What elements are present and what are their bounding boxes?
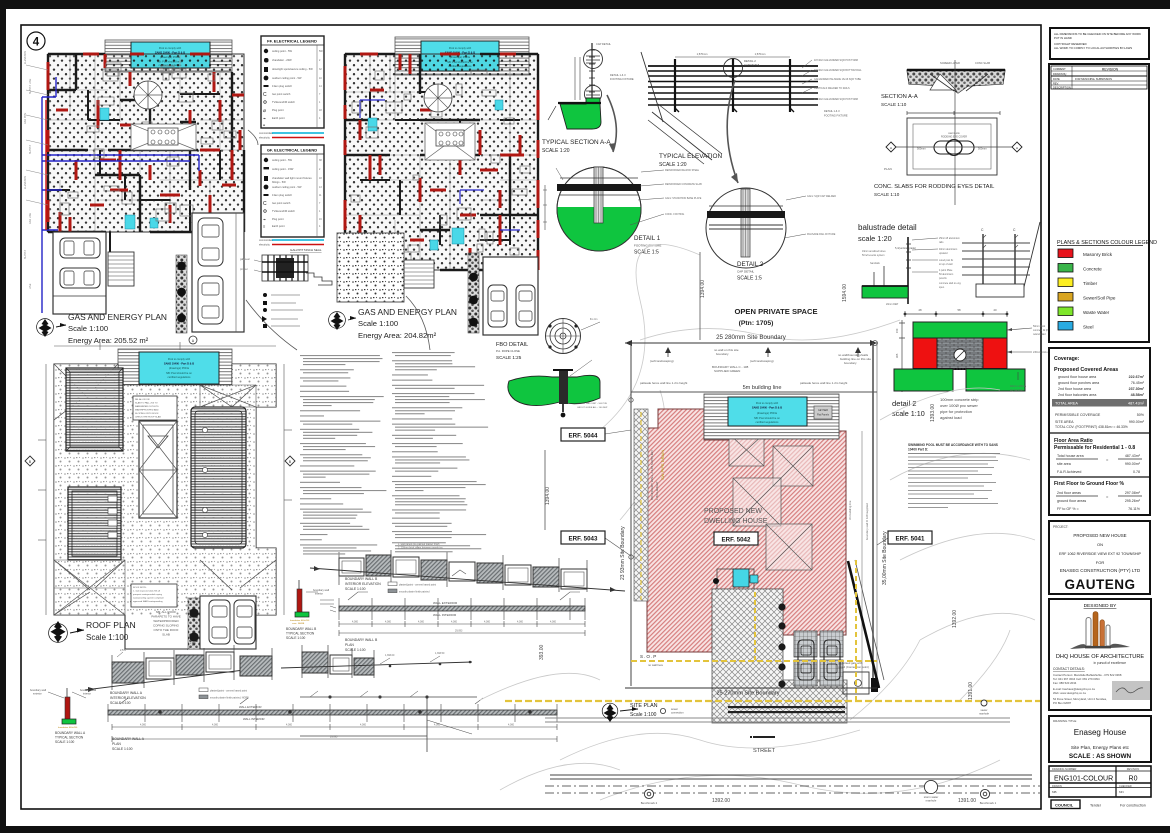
svg-text:NB: Pool should be on: NB: Pool should be on: [166, 371, 192, 375]
svg-text:SCREED LAYER: SCREED LAYER: [940, 61, 960, 65]
svg-text:ENG101-COLOUR: ENG101-COLOUR: [1054, 776, 1113, 783]
svg-text:ERF. 5043: ERF. 5043: [569, 536, 598, 543]
svg-text:10400 Part D:: 10400 Part D:: [908, 448, 928, 452]
svg-text:exterior: exterior: [33, 692, 42, 696]
svg-text:Floor Area Ratio: Floor Area Ratio: [1054, 438, 1093, 444]
svg-text:(soft landscaping): (soft landscaping): [750, 359, 774, 363]
svg-text:SUPPLIED GREEN: SUPPLIED GREEN: [714, 369, 740, 373]
svg-text:SLOPING ONTO ROOF: SLOPING ONTO ROOF: [135, 413, 159, 415]
svg-text:CHECKED: CHECKED: [1119, 784, 1132, 788]
svg-text:TYPICAL SECTION A-A: TYPICAL SECTION A-A: [542, 139, 611, 146]
svg-text:5m building line: 5m building line: [743, 385, 782, 391]
svg-text:SITE AREA: SITE AREA: [1055, 420, 1074, 424]
svg-text:Earth point: Earth point: [272, 116, 285, 120]
svg-text:GALV. SQR CAP WELDED: GALV. SQR CAP WELDED: [807, 195, 836, 198]
svg-text:40Y40x3 GALVANIZED SQR POST 5M: 40Y40x3 GALVANIZED SQR POST 5MM: [814, 59, 858, 62]
svg-text:SITE PLAN: SITE PLAN: [630, 703, 658, 709]
svg-text:MB: MB: [1052, 790, 1057, 794]
svg-text:handrails: handrails: [870, 262, 881, 265]
svg-text:4,000: 4,000: [352, 621, 359, 624]
svg-text:downlight spots/secure ceiling: downlight spots/secure ceiling - 5W: [272, 67, 313, 71]
svg-text:manhole: manhole: [979, 712, 990, 716]
svg-text:outdoor ceiling point - 5W: outdoor ceiling point - 5W: [272, 76, 302, 80]
svg-text:500mm: 500mm: [917, 147, 926, 151]
svg-text:INTERIOR ELEVATION: INTERIOR ELEVATION: [345, 582, 381, 586]
svg-text:REVISION: REVISION: [1102, 68, 1119, 72]
svg-text:cored post fix: cored post fix: [939, 259, 954, 262]
svg-text:50%: 50%: [1137, 413, 1145, 417]
svg-text:Fax: 086 520 2034: Fax: 086 520 2034: [1053, 681, 1077, 685]
svg-text:REINFORCED RE-ROD STEEL: REINFORCED RE-ROD STEEL: [665, 169, 700, 172]
svg-text:GALVANIZED PALISADE 16x16 SQR: GALVANIZED PALISADE 16x16 SQR TUBE: [814, 78, 861, 81]
svg-text:4,000: 4,000: [418, 621, 425, 624]
svg-text:4,000: 4,000: [140, 724, 147, 727]
svg-text:25mm Ø aluminium: 25mm Ø aluminium: [939, 237, 960, 240]
svg-text:C: C: [263, 201, 267, 207]
svg-text:0.78: 0.78: [1133, 470, 1140, 474]
svg-text:ERF 1062 RIVERSIDE VIEW EXT 92: ERF 1062 RIVERSIDE VIEW EXT 92 TOWNSHIP: [1059, 552, 1142, 556]
svg-text:(Ptn: 1705): (Ptn: 1705): [739, 320, 774, 327]
svg-text:scale 1:20: scale 1:20: [858, 234, 892, 243]
svg-text:SUPPLY: SUPPLY: [29, 144, 32, 154]
svg-text:conc. NGRB: conc. NGRB: [292, 623, 305, 625]
svg-text:FBO DETAIL: FBO DETAIL: [496, 342, 528, 348]
svg-text:B: B: [29, 460, 31, 464]
svg-text:TV&sound/M switch: TV&sound/M switch: [272, 209, 295, 213]
svg-text:fbo rim: fbo rim: [590, 318, 597, 321]
svg-text:COPING SLOPING: COPING SLOPING: [153, 624, 180, 628]
svg-text:PROPOSED NEW HOUSE: PROPOSED NEW HOUSE: [1073, 533, 1126, 538]
svg-text:4 point Plate: 4 point Plate: [939, 269, 953, 272]
svg-text:in pursuit of excellence: in pursuit of excellence: [1094, 661, 1127, 665]
svg-text:ELEVATION: ELEVATION: [24, 176, 27, 189]
svg-text:1,570mm: 1,570mm: [697, 52, 708, 56]
svg-text:over 100Ø pvc sewer: over 100Ø pvc sewer: [940, 403, 978, 408]
svg-text:reland.) laid: reland.) laid: [1033, 333, 1046, 336]
svg-text:ENASEG CONSTRUCTION (PTY) LTD: ENASEG CONSTRUCTION (PTY) LTD: [1060, 568, 1141, 573]
svg-text:ceiling point - 5W: ceiling point - 5W: [272, 158, 292, 162]
svg-text:SWIMMING POOL MUST BE ACCORDAN: SWIMMING POOL MUST BE ACCORDANCE WITH TO…: [908, 443, 998, 447]
svg-text:pit liner: pit liner: [240, 268, 248, 271]
svg-text:DETAIL 1 & 3: DETAIL 1 & 3: [824, 109, 840, 113]
svg-text:2,570: 2,570: [190, 642, 197, 645]
svg-text:13am plug switch: 13am plug switch: [272, 193, 293, 197]
svg-text:DATE: DATE: [1053, 77, 1060, 81]
svg-text:to top of wall: to top of wall: [939, 263, 953, 266]
svg-text:Steel: Steel: [1083, 325, 1093, 330]
svg-text:CONTACT DETAILS:: CONTACT DETAILS:: [1053, 667, 1085, 671]
svg-text:CONC. FOOTING: CONC. FOOTING: [665, 213, 684, 216]
svg-text:ERF. 5044: ERF. 5044: [569, 433, 598, 440]
svg-text:BOUNDARY WALL A 1#8 SUPPLIED: BOUNDARY WALL A 1#8 SUPPLIED: [650, 449, 654, 500]
svg-text:13am plug switch: 13am plug switch: [272, 84, 293, 88]
svg-text:For construction: For construction: [1120, 804, 1146, 808]
svg-text:Permissable for Residential 1: Permissable for Residential 1 - 0.8: [1054, 445, 1135, 451]
svg-text:BOUNDARY WALL B: BOUNDARY WALL B: [345, 577, 378, 581]
svg-text:concrete lid (if: concrete lid (if: [1033, 329, 1048, 332]
svg-text:Tender: Tender: [1090, 804, 1102, 808]
svg-text:SANS 10400 - Part D & B: SANS 10400 - Part D & B: [164, 362, 194, 366]
svg-text:LINE: LINE: [29, 283, 32, 289]
svg-text:PLAN: PLAN: [884, 167, 892, 171]
svg-text:393.00: 393.00: [539, 644, 545, 660]
svg-text:ERF. 5041: ERF. 5041: [896, 536, 925, 543]
svg-text:pipe for protection: pipe for protection: [940, 409, 972, 414]
svg-text:BOUNDARY WALL B: BOUNDARY WALL B: [286, 627, 316, 631]
svg-text:NB: ALL ROOF: NB: ALL ROOF: [156, 610, 177, 614]
svg-text:Masonry Brick: Masonry Brick: [1083, 252, 1113, 257]
svg-text:PLAN: PLAN: [112, 742, 121, 746]
svg-text:CAP DETAIL: CAP DETAIL: [596, 42, 611, 46]
svg-text:4,000: 4,000: [212, 724, 219, 727]
svg-text:1. slab exposed slab 255 all: 1. slab exposed slab 255 all: [133, 591, 161, 593]
svg-text:interior: interior: [315, 592, 323, 596]
svg-text:PO Bus 62087: PO Bus 62087: [1053, 701, 1072, 705]
svg-text:100mm concrete strip: 100mm concrete strip: [940, 397, 979, 402]
svg-text:295.26m²: 295.26m²: [1125, 499, 1141, 503]
svg-text:Sewer/Soil Pipe: Sewer/Soil Pipe: [1083, 296, 1116, 301]
svg-text:REINFORCED CONCRETE SLAB: REINFORCED CONCRETE SLAB: [665, 183, 702, 186]
svg-text:1.8m HEIGHT: 1.8m HEIGHT: [655, 481, 659, 500]
svg-text:DETAIL 1 & 3: DETAIL 1 & 3: [610, 73, 626, 77]
svg-text:487.43m²: 487.43m²: [1128, 402, 1145, 406]
svg-text:electricity: electricity: [259, 136, 271, 140]
svg-text:DRAWN: DRAWN: [1052, 784, 1062, 788]
svg-text:29,093: 29,093: [455, 630, 463, 633]
svg-text:WALL INTERIOR: WALL INTERIOR: [433, 613, 457, 617]
svg-text:PARAPETS TO HAVE: PARAPETS TO HAVE: [151, 615, 180, 619]
svg-text:4,000: 4,000: [508, 724, 515, 727]
svg-text:58: 58: [957, 308, 961, 312]
svg-text:plaster&paint - cement based p: plaster&paint - cement based paint: [210, 690, 247, 693]
svg-text:305: 305: [895, 353, 899, 358]
svg-text:28: 28: [918, 308, 922, 312]
svg-text:DHQ HOUSE OF ARCHITECTURE: DHQ HOUSE OF ARCHITECTURE: [1056, 654, 1145, 660]
svg-text:PROPOSED NEW: PROPOSED NEW: [704, 508, 762, 515]
svg-text:CURRENT: CURRENT: [1053, 67, 1066, 71]
svg-text:smooth plaster finish painted,: smooth plaster finish painted, NGRB: [210, 697, 249, 700]
svg-text:40mm x 25mm: 40mm x 25mm: [1010, 385, 1026, 388]
svg-text:SANS 10400 - Part D & B: SANS 10400 - Part D & B: [752, 406, 782, 410]
svg-text:PROJECT:: PROJECT:: [1053, 525, 1069, 529]
svg-text:Proposed Covered Areas: Proposed Covered Areas: [1054, 367, 1118, 373]
svg-text:Φ: Φ: [263, 100, 267, 106]
svg-text:NB: Pool should be on: NB: Pool should be on: [754, 416, 780, 420]
svg-text:FOR: FOR: [1096, 560, 1105, 565]
svg-text:GALV/PIT 5INCH SEAL: GALV/PIT 5INCH SEAL: [290, 248, 322, 252]
svg-text:GAS LINE: GAS LINE: [29, 213, 32, 224]
svg-text:40mm aluminium: 40mm aluminium: [939, 248, 957, 251]
svg-text:2nd floor house area: 2nd floor house area: [1058, 387, 1091, 391]
svg-text:DRAWING NUMBER: DRAWING NUMBER: [1052, 767, 1077, 771]
svg-text:ceiling point - 15W: ceiling point - 15W: [272, 167, 294, 171]
svg-text:SCALE 1:25: SCALE 1:25: [496, 355, 522, 360]
svg-text:TYPICAL ELEVATION: TYPICAL ELEVATION: [659, 153, 722, 160]
svg-text:TYPICAL SECTION: TYPICAL SECTION: [55, 736, 84, 740]
svg-text:ONTO THE ROOF: ONTO THE ROOF: [154, 628, 179, 632]
svg-text:Φ: Φ: [263, 209, 267, 215]
svg-text:GEYSER: GEYSER: [818, 409, 828, 412]
svg-text:ELEVATION: ELEVATION: [24, 51, 27, 64]
svg-text:DESCRIPTION: DESCRIPTION: [1053, 86, 1071, 90]
svg-text:3m building line: 3m building line: [848, 500, 852, 520]
svg-text:C: C: [263, 92, 267, 98]
svg-text:chandelier wall light mount fi: chandelier wall light mount fixtures: [272, 176, 312, 180]
svg-text:galv seal: galv seal: [240, 258, 250, 261]
svg-text:19mm anodized tubes: 19mm anodized tubes: [862, 250, 886, 253]
svg-text:SCALE 1:100: SCALE 1:100: [110, 701, 131, 705]
svg-text:4,000: 4,000: [286, 724, 293, 727]
svg-text:B: B: [289, 460, 291, 464]
svg-text:4,000: 4,000: [451, 621, 458, 624]
svg-text:76.11%: 76.11%: [1128, 507, 1141, 511]
svg-text:Benchmark 1: Benchmark 1: [980, 801, 997, 805]
svg-text:SCALE 1:100: SCALE 1:100: [345, 587, 366, 591]
svg-text:TYPICAL SECTION: TYPICAL SECTION: [286, 632, 315, 636]
svg-text:FOOTING FIXTURE: FOOTING FIXTURE: [610, 77, 634, 81]
svg-text:1,570mm: 1,570mm: [755, 52, 766, 56]
svg-text:SCALE 1:10: SCALE 1:10: [881, 102, 907, 107]
svg-text:SUPPLY LINE: SUPPLY LINE: [29, 78, 32, 94]
svg-text:76.45m²: 76.45m²: [1131, 381, 1145, 385]
svg-text:50mm thick: 50mm thick: [1033, 325, 1046, 328]
svg-text:DRAWING TITLE: DRAWING TITLE: [1053, 719, 1076, 723]
svg-text:Total house area: Total house area: [1057, 454, 1084, 458]
svg-text:SCALE 1:20: SCALE 1:20: [542, 148, 570, 154]
svg-text:smooth plaster finish painted: smooth plaster finish painted: [399, 591, 430, 594]
svg-text:two point switch: two point switch: [272, 92, 291, 96]
svg-text:comms/data: comms/data: [259, 238, 274, 242]
svg-text:(drawings) P001s: (drawings) P001s: [757, 411, 778, 415]
svg-text:Pool to comply with: Pool to comply with: [449, 46, 472, 50]
svg-text:foundation 600x250: foundation 600x250: [58, 726, 78, 729]
svg-text:50 aluminium: 50 aluminium: [939, 273, 953, 276]
svg-text:FF. ELECTRICAL LEGEND: FF. ELECTRICAL LEGEND: [267, 39, 317, 44]
svg-text:dry handrail: dry handrail: [1010, 389, 1023, 392]
svg-text:1394.00: 1394.00: [545, 487, 551, 505]
svg-text:guard (Connection point): guard (Connection point): [838, 665, 869, 669]
svg-text:4: 4: [33, 37, 40, 49]
svg-text:CAP DETAIL: CAP DETAIL: [744, 63, 761, 67]
svg-text:two point switch: two point switch: [272, 201, 291, 205]
svg-text:TV&sound/M switch: TV&sound/M switch: [272, 100, 295, 104]
svg-text:2nd floor areas: 2nd floor areas: [1057, 491, 1081, 495]
svg-text:1394.00: 1394.00: [700, 280, 706, 298]
svg-text:35,00mm Site Boundary: 35,00mm Site Boundary: [882, 531, 888, 585]
svg-text:waterproofing system compliant: waterproofing system compliant: [133, 597, 164, 600]
svg-text:BOUNDARY WALL B: BOUNDARY WALL B: [345, 638, 378, 642]
svg-text:parapets waterproofed coping: parapets waterproofed coping: [133, 593, 163, 596]
svg-text:WALL INTERIOR: WALL INTERIOR: [243, 717, 265, 721]
svg-text:fittings - 5W: fittings - 5W: [272, 180, 286, 184]
svg-text:CONC. SLABS FOR RODDING EYES D: CONC. SLABS FOR RODDING EYES DETAIL: [874, 184, 995, 190]
svg-text:1,393.50: 1,393.50: [435, 652, 445, 655]
svg-text:approved SANS waterproofing: approved SANS waterproofing: [133, 600, 163, 603]
svg-text:Energy Area: 204.82m²: Energy Area: 204.82m²: [358, 331, 437, 340]
svg-text:4,000: 4,000: [484, 621, 491, 624]
svg-text:⌁: ⌁: [263, 116, 266, 122]
svg-text:GAS AND ENERGY PLAN: GAS AND ENERGY PLAN: [358, 307, 457, 317]
svg-text:23 93mm Site Boundary: 23 93mm Site Boundary: [620, 526, 626, 580]
svg-text:ROOF NOTE:: ROOF NOTE:: [133, 587, 147, 589]
svg-text:R0: R0: [1129, 776, 1138, 783]
svg-text:boundary wall: boundary wall: [313, 588, 329, 592]
svg-text:CONC SLAB: CONC SLAB: [975, 61, 990, 65]
svg-text:1,393.00: 1,393.00: [385, 654, 395, 657]
svg-text:GROUT GUIDE ALL - 100 DEP: GROUT GUIDE ALL - 100 DEP: [577, 406, 608, 409]
svg-text:990.00m²: 990.00m²: [1125, 462, 1141, 466]
svg-text:50 left events system: 50 left events system: [862, 254, 884, 257]
svg-text:F.A.R Achieved: F.A.R Achieved: [1057, 470, 1081, 474]
svg-text:25 270mm Site Boundary: 25 270mm Site Boundary: [716, 691, 779, 697]
svg-text:against load: against load: [940, 415, 962, 420]
svg-text:1391.00: 1391.00: [968, 682, 974, 700]
svg-text:Earth point: Earth point: [272, 224, 285, 228]
svg-text:1392.00: 1392.00: [712, 798, 730, 804]
svg-text:OPEN PRIVATE SPACE: OPEN PRIVATE SPACE: [734, 307, 817, 316]
svg-text:boundary wall: boundary wall: [80, 688, 96, 692]
svg-text:WATERPROOFED: WATERPROOFED: [153, 619, 179, 623]
svg-text:RAINWATER OUTLETS: RAINWATER OUTLETS: [135, 405, 159, 408]
svg-text:2,570: 2,570: [120, 649, 127, 652]
svg-text:boundary: boundary: [844, 361, 857, 365]
svg-text:SCALE 1:20: SCALE 1:20: [659, 162, 687, 168]
svg-text:PUT IN HAND: PUT IN HAND: [1054, 36, 1072, 40]
svg-text:Scale 1:100: Scale 1:100: [358, 319, 398, 328]
svg-text:certified segulations: certified segulations: [756, 420, 780, 424]
svg-text:STREET: STREET: [753, 748, 776, 754]
svg-text:ON: ON: [1097, 542, 1103, 547]
svg-text:DWELLING HOUSE: DWELLING HOUSE: [704, 518, 768, 525]
svg-text:connection: connection: [671, 711, 684, 715]
svg-text:487.43m²: 487.43m²: [1125, 454, 1141, 458]
svg-text:1392.00: 1392.00: [952, 610, 958, 628]
svg-text:SECTION A-A: SECTION A-A: [881, 94, 918, 100]
svg-text:MN: MN: [1119, 790, 1124, 794]
svg-text:S.O.P: S.O.P: [640, 654, 657, 659]
svg-text:SW PIPE DRAIN: SW PIPE DRAIN: [660, 450, 665, 480]
svg-text:SUPPLY: SUPPLY: [24, 249, 27, 259]
svg-text:BOUNDARY WALL A: BOUNDARY WALL A: [112, 737, 145, 741]
svg-text:sewer: sewer: [981, 708, 988, 712]
svg-text:150: 150: [895, 328, 899, 333]
svg-text:DRAWN By: DRAWN By: [1053, 72, 1067, 76]
svg-text:sewer: sewer: [671, 707, 678, 711]
svg-text:1391.00: 1391.00: [958, 798, 976, 804]
svg-text:297.08m²: 297.08m²: [1125, 491, 1141, 495]
svg-text:Web: www.designhq.co.za: Web: www.designhq.co.za: [1053, 691, 1086, 695]
svg-text:4,000: 4,000: [385, 621, 392, 624]
svg-text:40Y40x3 GALVANIZED SQR POST 5M: 40Y40x3 GALVANIZED SQR POST 5MM: [814, 98, 858, 101]
svg-text:manhole: manhole: [926, 799, 937, 803]
svg-text:comms/data: comms/data: [259, 131, 274, 135]
svg-text:GALV. STANCHION BASE PLATE: GALV. STANCHION BASE PLATE: [665, 197, 702, 200]
svg-text:RODDING EYE COVER: RODDING EYE COVER: [941, 136, 967, 139]
svg-text:interior: interior: [83, 692, 91, 696]
svg-text:48.58m²: 48.58m²: [1131, 393, 1145, 397]
svg-text:balustrade detail: balustrade detail: [858, 223, 917, 232]
svg-text:PLANS & SECTIONS COLOUR LEGEND: PLANS & SECTIONS COLOUR LEGEND: [1057, 240, 1157, 246]
svg-text:INTERIOR ELEVATION: INTERIOR ELEVATION: [110, 696, 146, 700]
svg-text:NB: ALL ROOF: NB: ALL ROOF: [135, 398, 151, 401]
svg-text:1393.00: 1393.00: [930, 404, 936, 422]
svg-text:500mm: 500mm: [978, 147, 987, 151]
svg-text:Plug point: Plug point: [272, 217, 284, 221]
svg-text:FOR MUNICIPAL SUBMISSION: FOR MUNICIPAL SUBMISSION: [1075, 77, 1112, 81]
svg-text:concrete slab to eng.: concrete slab to eng.: [939, 282, 962, 285]
svg-text:GAUTENG: GAUTENG: [1065, 577, 1136, 592]
svg-text:REV.: REV.: [1053, 82, 1059, 86]
svg-text:990.00m²: 990.00m²: [1129, 420, 1145, 424]
svg-text:4,000: 4,000: [550, 621, 557, 624]
svg-text:DETAIL 1: DETAIL 1: [634, 235, 661, 242]
svg-text:Flat Panels: Flat Panels: [817, 414, 830, 417]
svg-text:A: A: [890, 146, 892, 150]
svg-text:2nd floor balconies area: 2nd floor balconies area: [1058, 393, 1096, 397]
svg-text:Pool to comply with: Pool to comply with: [756, 401, 779, 405]
svg-text:ALL WORK TO COMPLY TO LOCAL AU: ALL WORK TO COMPLY TO LOCAL AUTHORITIES …: [1054, 46, 1132, 50]
svg-text:Energy Area: 205.52 m²: Energy Area: 205.52 m²: [68, 336, 149, 345]
svg-text:GF. ELECTRICAL LEGEND: GF. ELECTRICAL LEGEND: [267, 148, 317, 153]
svg-text:electricity: electricity: [259, 243, 271, 247]
svg-text:Site Plan, Energy Plans etc: Site Plan, Energy Plans etc: [1071, 745, 1130, 751]
svg-text:Scale 1:100: Scale 1:100: [86, 633, 129, 642]
svg-text:outdoor ceiling point - 5W: outdoor ceiling point - 5W: [272, 185, 302, 189]
svg-text:boundary wall D 1#8 supplied: boundary wall D 1#8 supplied: [865, 503, 869, 540]
svg-text:Waste Water: Waste Water: [1083, 310, 1110, 315]
svg-text:DETAIL 2: DETAIL 2: [737, 261, 764, 268]
svg-text:PERMISSIBLE COVERAGE: PERMISSIBLE COVERAGE: [1055, 413, 1101, 417]
svg-text:⌀: ⌀: [263, 108, 266, 114]
svg-text:GAS AND ENERGY PLAN: GAS AND ENERGY PLAN: [68, 312, 167, 322]
svg-text:WATERPROOFED AND: WATERPROOFED AND: [135, 409, 159, 412]
svg-text:FOOTING FIXTURE: FOOTING FIXTURE: [824, 114, 848, 118]
svg-text:4,000: 4,000: [517, 621, 524, 624]
svg-text:CHECK THE ROOF SLAB: CHECK THE ROOF SLAB: [135, 416, 161, 419]
svg-text:ceiling point - 5W: ceiling point - 5W: [272, 49, 292, 53]
svg-text:25 280mm Site Boundary: 25 280mm Site Boundary: [716, 334, 787, 341]
svg-text:P.A. ROPE CLOSE: P.A. ROPE CLOSE: [496, 349, 520, 353]
svg-text:PALISADE RAIL FIXTURE: PALISADE RAIL FIXTURE: [807, 233, 836, 236]
svg-text:Timber: Timber: [1083, 281, 1098, 286]
svg-text:no wall here: no wall here: [648, 663, 664, 667]
svg-text:upstand: upstand: [939, 252, 948, 255]
svg-text:WALL EXTERIOR: WALL EXTERIOR: [433, 601, 458, 605]
svg-text:237.30m²: 237.30m²: [1129, 387, 1145, 391]
svg-text:4,000: 4,000: [360, 724, 367, 727]
svg-text:ROOF PLAN: ROOF PLAN: [86, 620, 136, 630]
svg-text:spec.: spec.: [939, 286, 945, 289]
svg-text:BOUNDARY WALL A: BOUNDARY WALL A: [55, 731, 86, 735]
svg-text:SCALE 1:100: SCALE 1:100: [55, 740, 75, 744]
svg-text:REVISION: REVISION: [1127, 767, 1140, 771]
svg-text:TOTAL COV. (FOOTPRINT) 438.81m: TOTAL COV. (FOOTPRINT) 438.81m² = 46.33%: [1055, 425, 1128, 429]
svg-text:scale 1:10: scale 1:10: [892, 409, 925, 418]
svg-text:ERF. 5042: ERF. 5042: [722, 537, 751, 544]
svg-text:SLAB TO FALL 255 TO: SLAB TO FALL 255 TO: [135, 402, 158, 405]
svg-text:Scale 1:100: Scale 1:100: [630, 712, 657, 718]
svg-text:TOTAL AREA: TOTAL AREA: [1055, 402, 1078, 406]
svg-text:CAP DETAIL: CAP DETAIL: [737, 270, 755, 274]
svg-text:SCALE 1:100: SCALE 1:100: [345, 648, 366, 652]
svg-text:COUNCIL: COUNCIL: [1055, 803, 1074, 808]
svg-text:site area: site area: [1057, 462, 1071, 466]
svg-text:GAS PIPE: GAS PIPE: [24, 112, 27, 124]
svg-text:palisade fence wall line 1.2m: palisade fence wall line 1.2m height: [800, 381, 848, 385]
svg-text:SLAB: SLAB: [162, 633, 170, 637]
svg-text:VERTICALS WELDED TO RAILS: VERTICALS WELDED TO RAILS: [814, 87, 850, 90]
svg-text:First Floor to Ground Floor %: First Floor to Ground Floor %: [1054, 481, 1125, 487]
